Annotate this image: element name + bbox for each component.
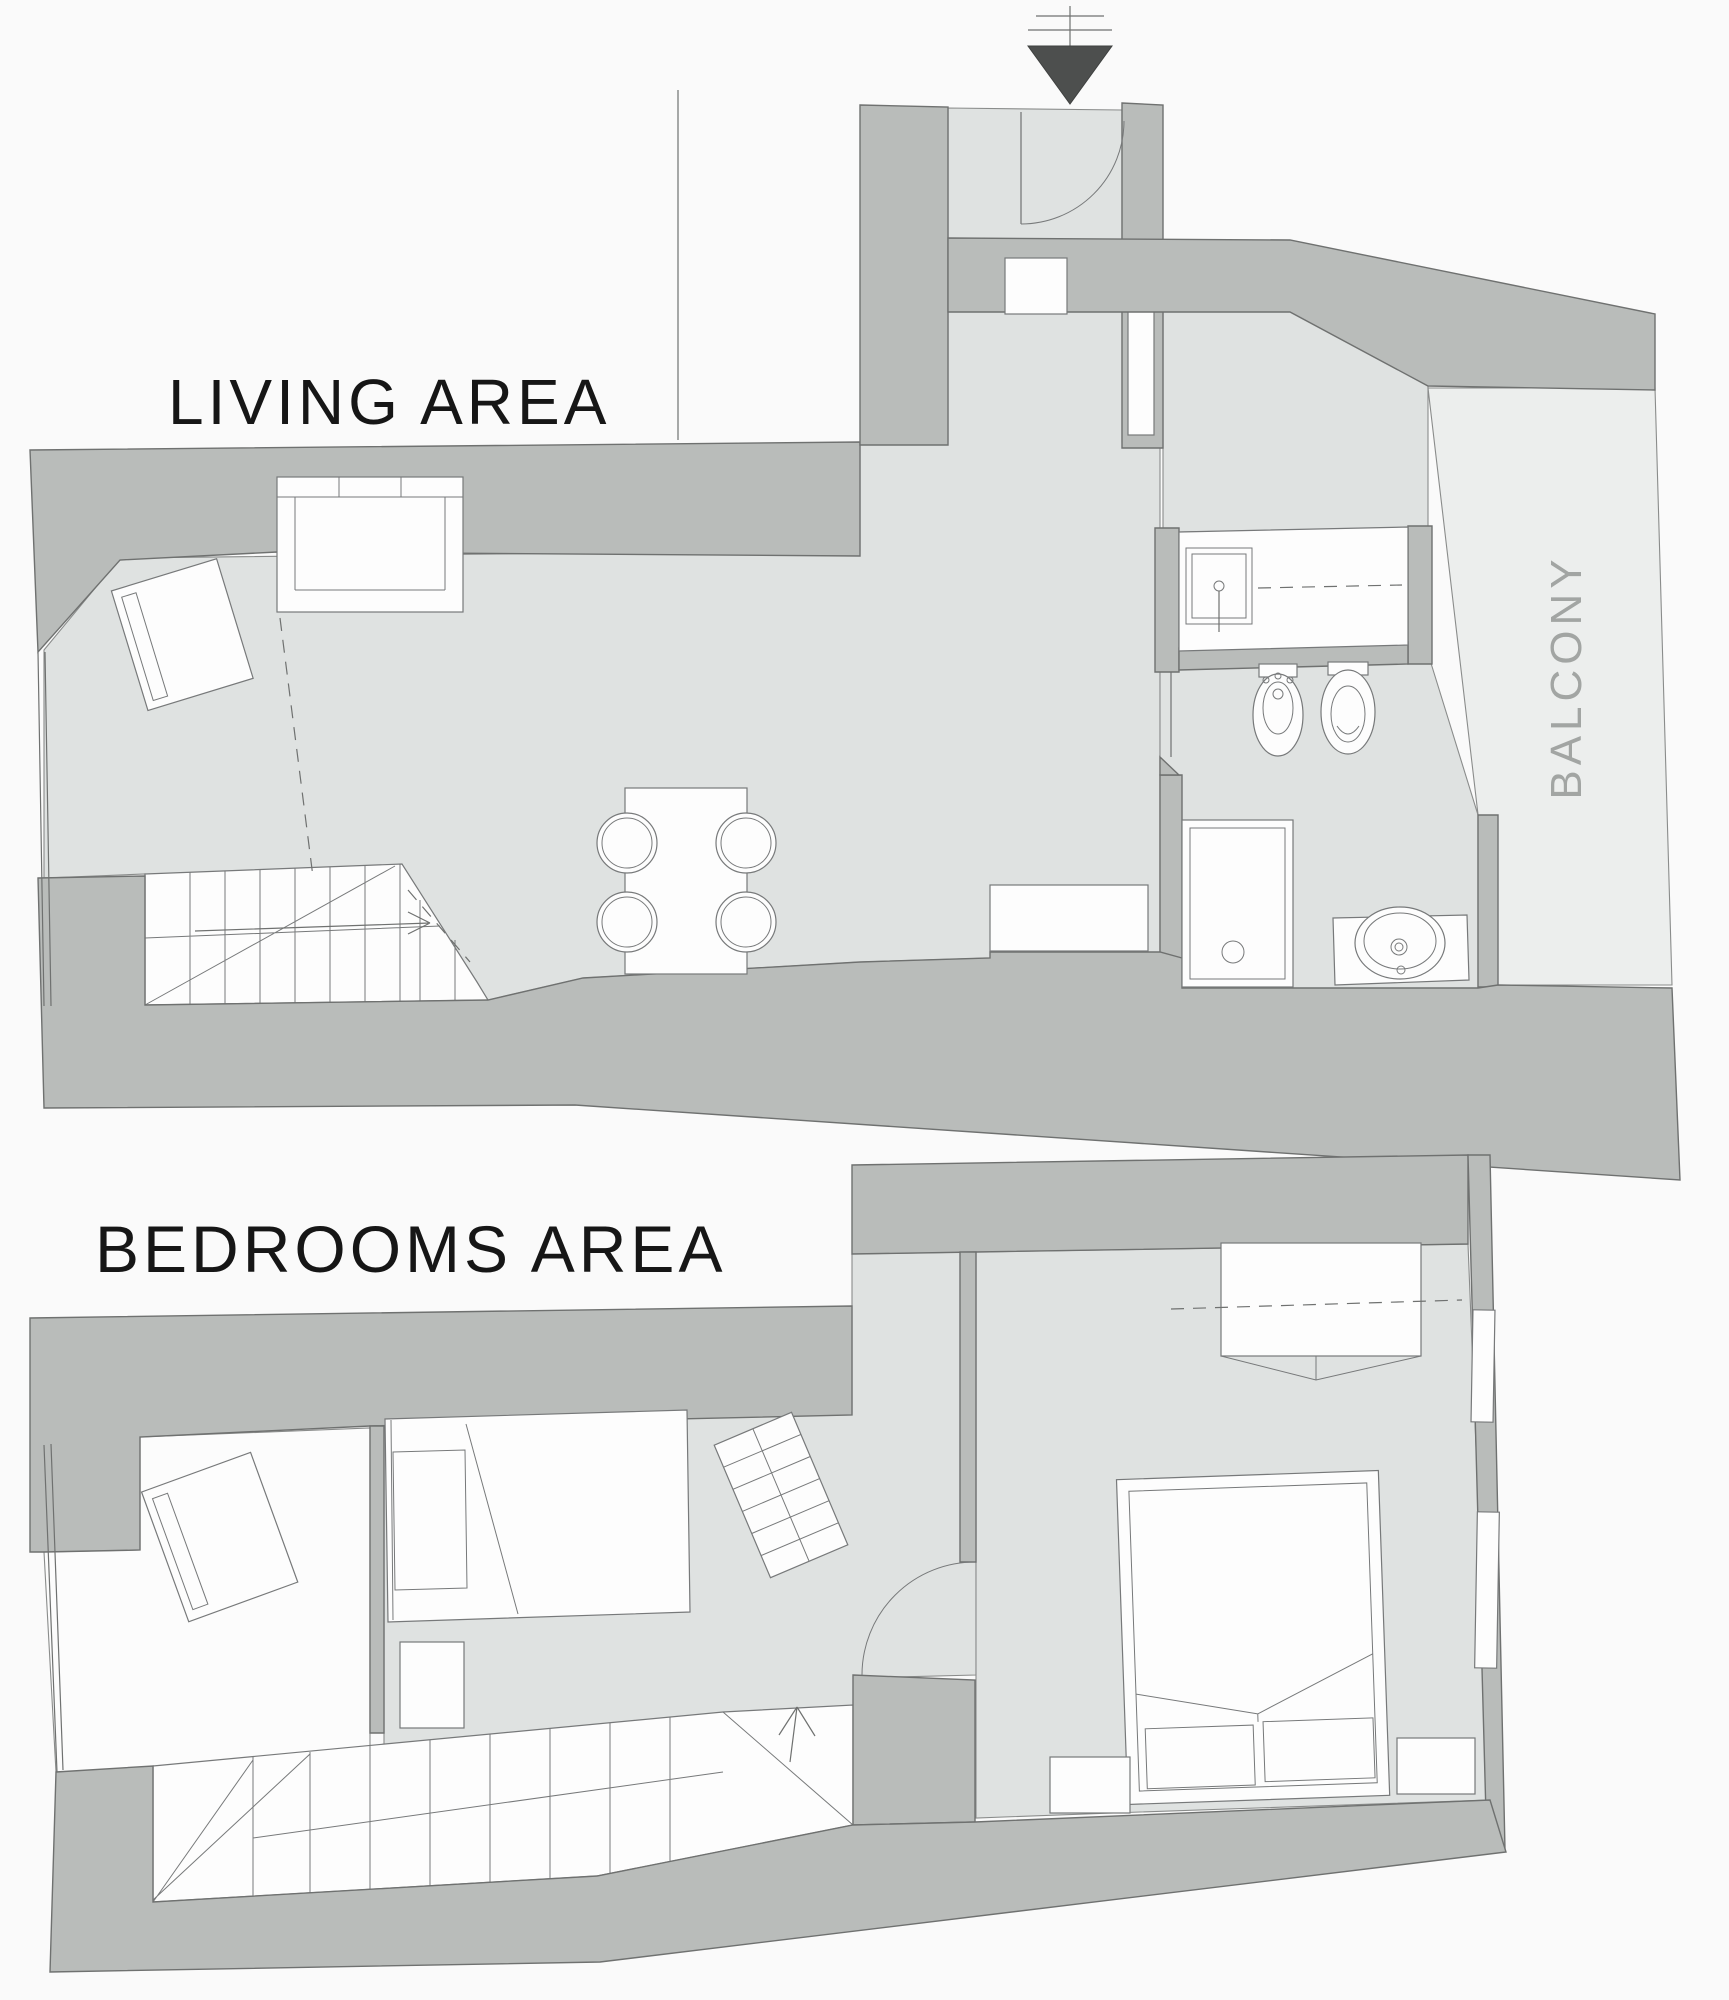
dining-chair <box>597 892 657 952</box>
balcony-label: BALCONY <box>1542 554 1591 799</box>
wall-corridor-left <box>860 105 948 445</box>
wallB-door-wall <box>960 1252 976 1562</box>
floor-plan-canvas: BALCONY LIVING AREA <box>0 0 1729 2000</box>
toilet-bowl <box>1321 670 1375 754</box>
washbasin <box>1333 907 1469 985</box>
wardrobe-outline <box>1221 1243 1421 1356</box>
bedroom-window-upper <box>1471 1310 1495 1422</box>
wallB-stair-block <box>853 1675 975 1825</box>
dining-chair <box>716 892 776 952</box>
single-bed <box>385 1410 690 1622</box>
bathtub <box>1179 527 1408 651</box>
dining-chair <box>597 813 657 873</box>
double-bed <box>1116 1471 1389 1805</box>
bidet-bowl <box>1253 674 1303 756</box>
top-wall-niche <box>1005 258 1067 314</box>
nightstand-right <box>1397 1738 1475 1794</box>
cabinet <box>400 1642 464 1728</box>
living-area-title: LIVING AREA <box>168 366 610 438</box>
wallB-room-divider <box>370 1426 384 1733</box>
single-bed-outline <box>385 1410 690 1622</box>
wall-bath-right <box>1478 815 1498 987</box>
bedroom-window-lower <box>1475 1512 1500 1668</box>
living-area-plan: BALCONY LIVING AREA <box>30 6 1680 1180</box>
bathtub-outline <box>1179 527 1408 651</box>
wall-bath-stub-right <box>1408 526 1432 664</box>
nightstand-left <box>1050 1757 1130 1813</box>
wall-bath-divider <box>1160 775 1182 958</box>
bedrooms-area-title: BEDROOMS AREA <box>95 1212 726 1286</box>
entrance-arrow-icon <box>1028 6 1112 104</box>
double-bed-outline <box>1116 1471 1389 1805</box>
entrance-arrow-hatch <box>1028 6 1112 46</box>
sideboard <box>990 885 1148 951</box>
dining-chair <box>716 813 776 873</box>
wallB-top-right <box>852 1155 1468 1254</box>
entrance-arrow-triangle <box>1028 46 1112 104</box>
bedrooms-area-plan: BEDROOMS AREA <box>30 1155 1506 1972</box>
shower <box>1182 820 1293 987</box>
wall-bath-stub-left <box>1155 528 1179 672</box>
sofa <box>277 477 463 612</box>
